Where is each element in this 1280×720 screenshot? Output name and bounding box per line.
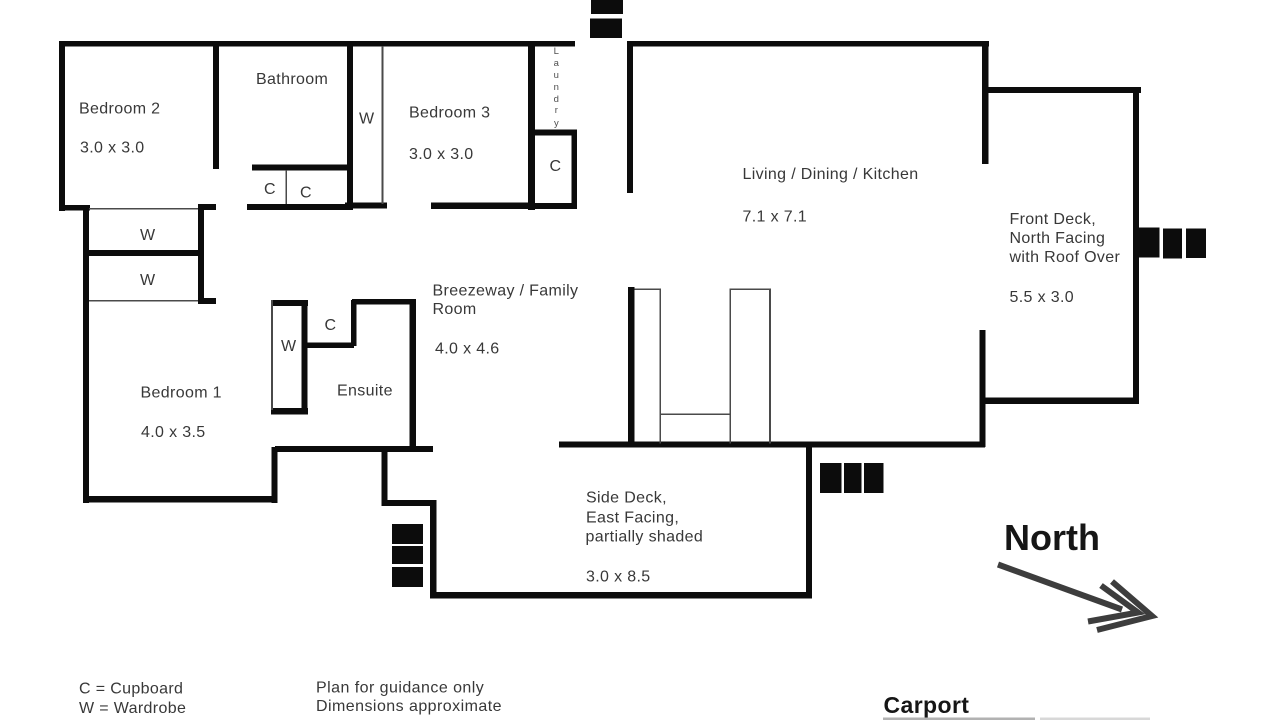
svg-text:Bedroom 2: Bedroom 2 [79,101,160,118]
svg-text:y: y [554,118,559,129]
svg-text:C: C [550,158,562,175]
svg-text:W = Wardrobe: W = Wardrobe [79,700,186,717]
svg-text:W: W [281,338,297,355]
svg-text:d: d [554,94,560,105]
svg-text:East Facing,: East Facing, [586,510,679,527]
svg-text:3.0 x 3.0: 3.0 x 3.0 [409,146,474,163]
svg-text:C: C [325,317,337,334]
svg-text:u: u [554,70,560,81]
svg-text:3.0 x 8.5: 3.0 x 8.5 [586,569,651,586]
svg-text:3.0 x 3.0: 3.0 x 3.0 [80,140,145,157]
svg-text:4.0 x 3.5: 4.0 x 3.5 [141,424,206,441]
svg-text:C: C [300,185,312,202]
svg-text:7.1 x 7.1: 7.1 x 7.1 [743,209,808,226]
svg-text:L: L [554,46,560,57]
svg-text:Ensuite: Ensuite [337,383,393,400]
svg-text:with Roof Over: with Roof Over [1009,249,1121,266]
svg-text:W: W [140,272,156,289]
svg-text:C = Cupboard: C = Cupboard [79,681,183,698]
svg-text:Plan for guidance only: Plan for guidance only [316,680,484,697]
svg-text:n: n [554,82,560,93]
svg-text:Living / Dining / Kitchen: Living / Dining / Kitchen [743,166,919,183]
svg-text:C: C [264,181,276,198]
svg-text:Room: Room [433,301,477,318]
svg-text:a: a [554,58,560,69]
svg-text:Front Deck,: Front Deck, [1010,211,1097,228]
svg-text:Dimensions approximate: Dimensions approximate [316,698,502,715]
svg-text:W: W [140,227,156,244]
svg-text:Bathroom: Bathroom [256,71,328,88]
svg-text:Breezeway / Family: Breezeway / Family [433,283,579,300]
svg-text:North: North [1004,517,1100,558]
svg-text:r: r [555,105,559,116]
svg-text:Bedroom 1: Bedroom 1 [141,385,222,402]
svg-text:4.0 x 4.6: 4.0 x 4.6 [435,341,500,358]
svg-text:partially shaded: partially shaded [586,529,704,546]
svg-text:Carport: Carport [884,692,970,718]
svg-text:Bedroom 3: Bedroom 3 [409,105,490,122]
svg-text:5.5 x 3.0: 5.5 x 3.0 [1010,289,1075,306]
svg-text:Side Deck,: Side Deck, [586,490,667,507]
svg-text:W: W [359,111,375,128]
svg-text:North Facing: North Facing [1010,230,1106,247]
